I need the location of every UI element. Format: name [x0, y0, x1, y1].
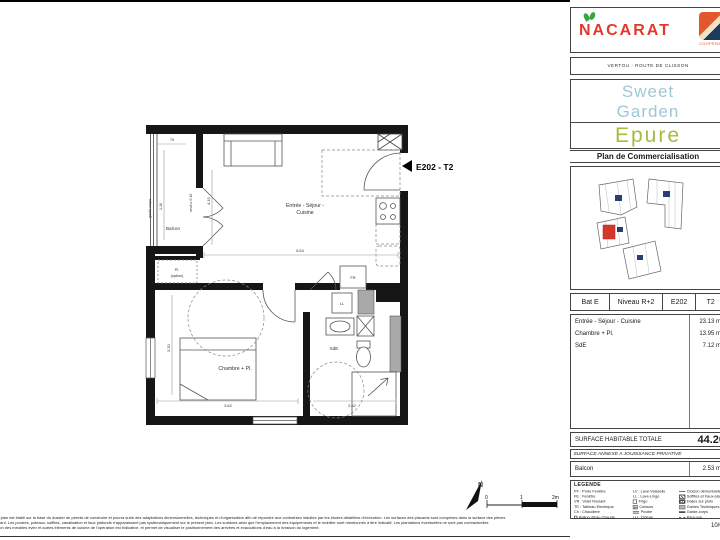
legend-item: Clôture [633, 515, 675, 520]
living-room-label2: Cuisine [296, 210, 313, 216]
duct-hatch-box [378, 134, 402, 150]
soffit-icon [679, 495, 685, 499]
annex-header-box: SURFACE ANNEXE A JOUISSANCE PRIVATIVE [570, 449, 720, 459]
threshold-label: seuil ≤ 0.10 [189, 194, 193, 212]
surface-value: 7.12 m² [687, 341, 720, 351]
entrance-door [364, 153, 400, 190]
legend-item-label: Dalles sur plots [687, 500, 713, 504]
beam-icon [633, 511, 639, 513]
balcony-railing [151, 134, 158, 246]
dim-bedroom-w: 3.62 [224, 403, 233, 408]
legend-box: LEGENDE PF : Porte Fenêtre FE : Fenêtre … [570, 480, 720, 519]
dim-bathroom-w: 2.62 [348, 403, 357, 408]
dim-living-w: 5.64 [296, 248, 305, 253]
surfaces-box: Entrée - Séjour - Cuisine 23.13 m² Chamb… [570, 314, 720, 429]
scale-0: 0 [485, 495, 488, 501]
unit-info-table: Bat E Niveau R+2 E202 T2 [570, 293, 720, 311]
legend-item-label: LV : Lave-Vaisselle [633, 489, 665, 493]
fence-icon [633, 516, 639, 519]
scale-2m: 2m [552, 495, 559, 501]
total-surface-label: SURFACE HABITABLE TOTALE [571, 437, 685, 443]
disclaimer-line: tation des meubles évier et autres éléme… [0, 526, 570, 531]
total-surface-box: SURFACE HABITABLE TOTALE 44.20 [570, 432, 720, 447]
north-arrow: N [466, 480, 483, 510]
site-plan [571, 167, 720, 289]
legend-item-label: Clôture [641, 515, 653, 519]
slab-icon [679, 500, 685, 504]
annex-row: Balcon 2.53 m² [571, 462, 720, 474]
legend-item-label: Poutre [641, 510, 652, 514]
legend-item-label: VR : Volet Roulant [574, 500, 605, 504]
bedroom-door [263, 290, 295, 322]
type-cell: T2 [696, 294, 720, 310]
legend-item-label: TE : Tableau Electrique [574, 505, 614, 509]
page: Entrée - Séjour - Cuisine Chambre + Pl. … [0, 0, 720, 540]
location-box: VERTOU - ROUTE DE CLISSON [570, 57, 720, 75]
site-plan-box [570, 166, 720, 290]
living-room-label: Entrée - Séjour - [286, 203, 324, 209]
partition-icon [679, 491, 685, 492]
coop-logo-icon [699, 12, 720, 40]
legend-item-label: Ch : Chaudière [574, 510, 600, 514]
washbasin [326, 318, 354, 335]
project-name-line3: Epure [571, 122, 720, 149]
dim-balcony-w: 75 [170, 138, 174, 142]
legend-item-label: Cuisson [639, 505, 653, 509]
legend-item: Pare-vue [679, 515, 720, 520]
location-label: VERTOU - ROUTE DE CLISSON [607, 64, 688, 69]
bedroom-label: Chambre + Pl. [218, 366, 251, 372]
railing-label: garde-corps [148, 199, 152, 218]
scale-1: 1 [520, 495, 523, 501]
building-cell: Bat E [571, 294, 610, 310]
surface-label: Chambre + Pl. [575, 329, 614, 339]
sofa [224, 134, 282, 166]
legend-columns: PF : Porte Fenêtre FE : Fenêtre VR : Vol… [574, 489, 720, 520]
coop-logo-text: COOPÉRA [699, 41, 720, 46]
coop-logo: COOPÉRA [699, 12, 720, 48]
highlighted-unit [603, 225, 615, 239]
annex-header-label: SURFACE ANNEXE A JOUISSANCE PRIVATIVE [571, 452, 682, 457]
legend-col-2: LV : Lave-Vaisselle LL : Lave-Linge Frig… [633, 489, 675, 520]
project-name-line2: Garden [571, 103, 720, 120]
shower [352, 372, 396, 416]
annex-value: 2.53 m² [687, 464, 720, 474]
washer-label: LL [340, 301, 345, 306]
cooktop-icon [633, 505, 638, 509]
toilet [357, 341, 371, 367]
north-label: N [478, 482, 483, 489]
surface-label: SdE [575, 341, 586, 351]
balcony-double-door [203, 188, 223, 246]
annex-surfaces-box: Balcon 2.53 m² [570, 461, 720, 477]
legend-item-label: Soffites et Faux-plafonds [687, 495, 720, 499]
dim-bedroom-h: 3.20 [166, 343, 171, 352]
project-box: Sweet Garden Epure [570, 79, 720, 149]
walls [146, 125, 408, 425]
legend-item-label: LL : Lave-Linge [633, 495, 659, 499]
dim-living-h: 4.15 [206, 196, 211, 205]
siphon-box [357, 316, 374, 336]
leaf-icon [589, 11, 597, 20]
surface-row: Entrée - Séjour - Cuisine 23.13 m² [571, 315, 720, 327]
duct-icon [679, 505, 685, 509]
dim-balcony-d: 1.16 [159, 203, 163, 210]
total-surface-value: 44.20 [685, 434, 720, 446]
scale-bar: 0 1 2m [485, 495, 559, 508]
disclaimer: ent plan est établi sur la base du dossi… [0, 516, 570, 531]
project-name-line1: Sweet [571, 83, 720, 100]
legend-title: LEGENDE [574, 482, 720, 488]
guardrail-icon [679, 512, 685, 513]
legend-item-label: Ballon d'Eau Chaude [579, 515, 615, 519]
level-cell: Niveau R+2 [610, 294, 663, 310]
fridge-icon [633, 500, 637, 504]
cooktop [376, 198, 400, 224]
legend-item-label: Gaines Techniques [687, 505, 720, 509]
surface-value: 23.13 m² [687, 317, 720, 327]
legend-item-label: Frigo [639, 500, 648, 504]
legend-item-label: FE : Fenêtre [574, 495, 595, 499]
surface-label: Entrée - Séjour - Cuisine [575, 317, 641, 327]
legend-col-3: Cloison démontable Soffites et Faux-plaf… [679, 489, 720, 520]
bathroom-label: SdE [330, 346, 339, 351]
legend-item-label: Cloison démontable [687, 489, 720, 493]
screen-icon [679, 517, 685, 518]
plan-date: 10/04 [711, 523, 720, 529]
closet-label: Pl. [175, 268, 179, 272]
info-panel: NACARAT COOPÉRA VERTOU - ROUTE DE CLISSO… [570, 0, 720, 540]
balcony-label: Balcon [166, 226, 180, 231]
unit-marker-label: E202 - T2 [416, 162, 454, 172]
surface-row: SdE 7.12 m² [571, 339, 720, 351]
surface-value: 13.95 m² [687, 329, 720, 339]
logo-box: NACARAT COOPÉRA [570, 7, 720, 53]
fridge-label: FR [350, 275, 355, 280]
document-title: Plan de Commercialisation [570, 150, 720, 163]
closet-option-label: (option) [171, 274, 185, 278]
lot-cell: E202 [663, 294, 697, 310]
legend-item-label: PF : Porte Fenêtre [574, 489, 606, 493]
legend-item-label: Pare-vue [687, 515, 703, 519]
unit-marker: E202 - T2 [402, 160, 454, 172]
annex-label: Balcon [575, 464, 593, 474]
water-heater-icon [574, 516, 578, 520]
legend-item-label: Garde-corps [687, 510, 708, 514]
surface-row: Chambre + Pl. 13.95 m² [571, 327, 720, 339]
legend-item: Ballon d'Eau Chaude [574, 515, 629, 520]
brand-logo: NACARAT [579, 22, 671, 40]
legend-col-1: PF : Porte Fenêtre FE : Fenêtre VR : Vol… [574, 489, 629, 520]
